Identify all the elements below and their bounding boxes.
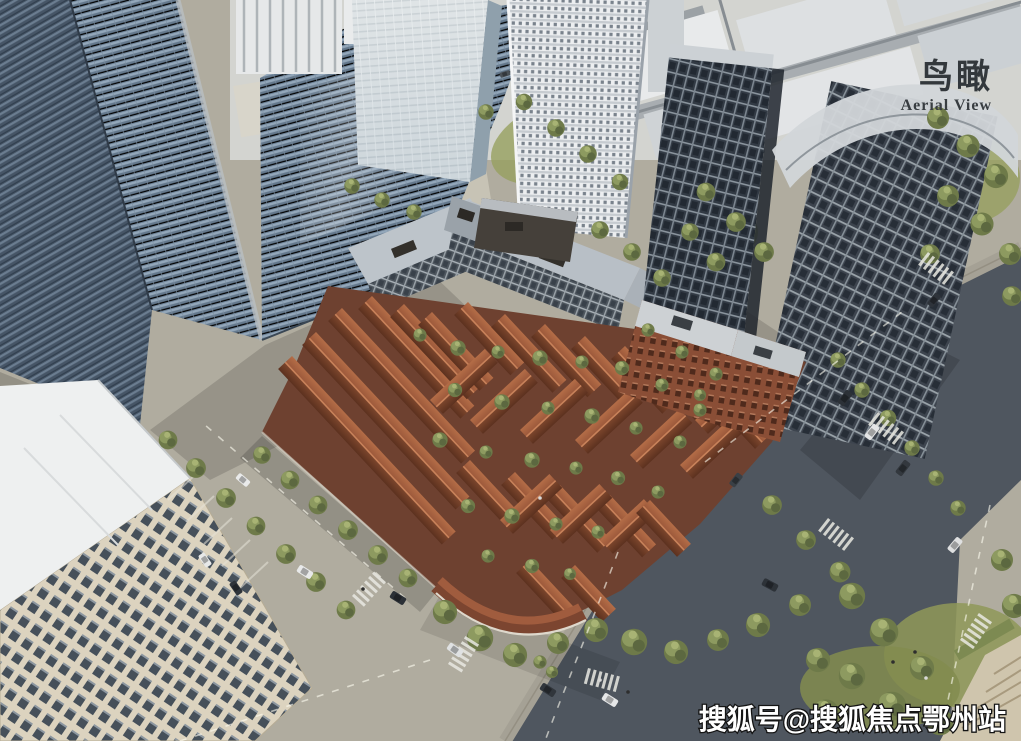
pale-glass-tower (352, 0, 502, 182)
aerial-view-rendering: 鸟瞰 Aerial View 搜狐号@搜狐焦点鄂州站 (0, 0, 1021, 741)
page-title-en: Aerial View (901, 97, 992, 114)
watermark-text: 搜狐号@搜狐焦点鄂州站 (699, 703, 1006, 735)
page-title-cn: 鸟瞰 (919, 58, 993, 96)
rendering-canvas: 鸟瞰 Aerial View 搜狐号@搜狐焦点鄂州站 (0, 0, 1021, 741)
